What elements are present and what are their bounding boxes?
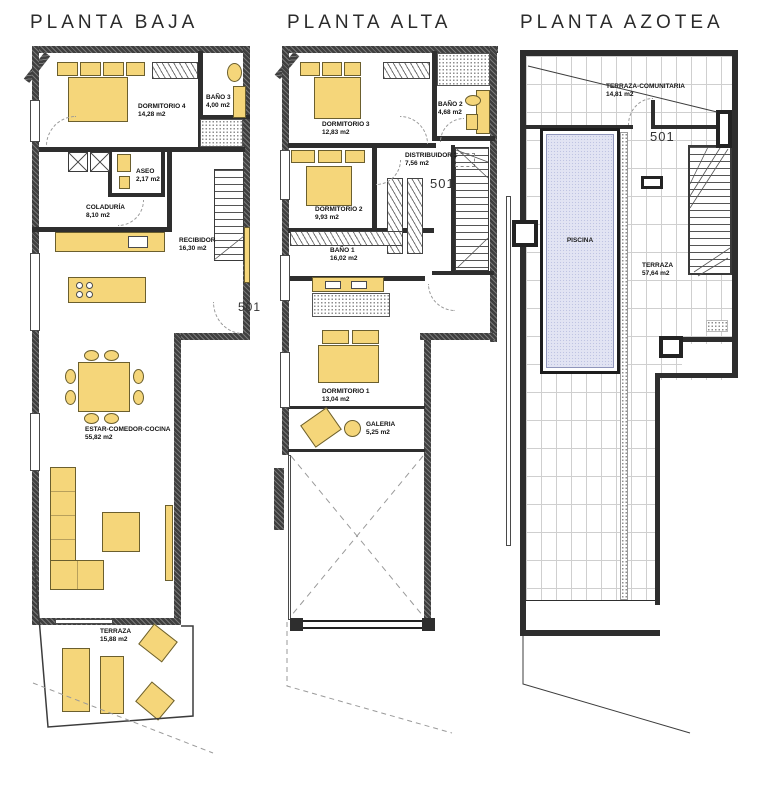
floorplan-canvas: PLANTA BAJA (0, 0, 768, 788)
staircase (688, 145, 732, 275)
column (512, 220, 538, 247)
room-label-piscina: PISCINA (552, 237, 608, 245)
wall (520, 630, 660, 636)
wall (655, 373, 660, 605)
plan-title-azotea: PLANTA AZOTEA (520, 12, 724, 34)
room-name: TERRAZA-COMUNITARIA (606, 83, 685, 91)
pool-water (546, 134, 614, 368)
roof-cutout (660, 380, 738, 606)
vent (641, 176, 663, 189)
column (659, 336, 683, 358)
unit-tag-azotea: 501 (650, 129, 675, 144)
room-label-terraza-comunitaria: TERRAZA-COMUNITARIA 14,81 m2 (606, 83, 685, 99)
grate (706, 320, 728, 332)
wall (732, 50, 738, 378)
drain-strip (620, 132, 628, 600)
parapet (506, 196, 511, 546)
wall (520, 50, 526, 636)
wall (655, 373, 738, 378)
roof-border-band (526, 601, 660, 631)
room-name: PISCINA (552, 237, 608, 245)
edge-line (526, 600, 660, 601)
column (716, 110, 732, 148)
roof-cutout (682, 344, 734, 374)
room-label-terraza-azotea: TERRAZA 57,64 m2 (642, 262, 673, 278)
room-area: 14,81 m2 (606, 91, 685, 99)
room-area: 57,64 m2 (642, 270, 673, 278)
plan-planta-azotea: PLANTA AZOTEA (0, 0, 768, 788)
room-name: TERRAZA (642, 262, 673, 270)
wall (520, 50, 738, 56)
